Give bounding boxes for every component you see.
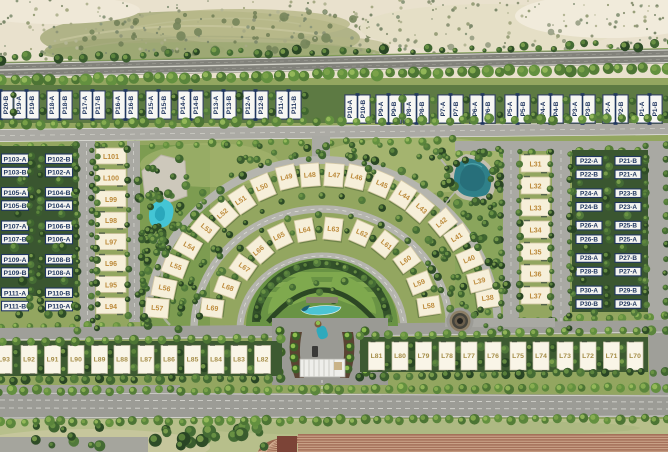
svg-text:P109-B: P109-B (3, 270, 26, 277)
svg-text:L63: L63 (327, 226, 340, 234)
svg-text:L77: L77 (463, 353, 475, 360)
svg-text:P18-A: P18-A (49, 95, 56, 114)
svg-text:L95: L95 (105, 282, 117, 289)
svg-text:P18-B: P18-B (62, 95, 69, 114)
svg-text:L33: L33 (529, 206, 541, 213)
svg-text:P28-B: P28-B (580, 269, 598, 276)
svg-text:L101: L101 (103, 154, 119, 161)
svg-text:L84: L84 (210, 357, 222, 364)
svg-text:L81: L81 (371, 353, 383, 360)
svg-text:L73: L73 (559, 353, 571, 360)
svg-text:L37: L37 (529, 294, 541, 301)
svg-text:P11-B: P11-B (291, 96, 298, 114)
svg-text:P1-A: P1-A (639, 101, 646, 116)
svg-text:L82: L82 (257, 357, 269, 364)
svg-text:P16-A: P16-A (115, 95, 122, 114)
svg-text:P8-A: P8-A (406, 101, 413, 116)
svg-text:P26-B: P26-B (580, 236, 598, 243)
svg-text:L97: L97 (105, 240, 117, 247)
svg-text:P24-A: P24-A (580, 190, 598, 197)
svg-text:P10-A: P10-A (347, 99, 354, 118)
svg-text:P3-A: P3-A (572, 101, 579, 116)
svg-text:L88: L88 (116, 357, 128, 364)
svg-text:P27-B: P27-B (619, 255, 637, 262)
svg-text:P104-A: P104-A (47, 203, 70, 210)
svg-text:P103-A: P103-A (3, 156, 26, 163)
svg-text:P108-B: P108-B (47, 257, 70, 264)
svg-text:P19-B: P19-B (29, 95, 36, 114)
svg-text:P13-B: P13-B (226, 95, 233, 114)
svg-text:P13-A: P13-A (213, 95, 220, 114)
svg-text:P27-A: P27-A (619, 269, 637, 276)
svg-text:P25-A: P25-A (619, 236, 637, 243)
svg-text:L76: L76 (487, 353, 499, 360)
svg-text:P105-A: P105-A (3, 190, 26, 197)
svg-text:L100: L100 (103, 175, 119, 182)
svg-text:P23-A: P23-A (619, 204, 637, 211)
svg-text:L36: L36 (529, 272, 541, 279)
svg-text:P110-A: P110-A (48, 304, 71, 311)
svg-text:P7-A: P7-A (440, 101, 447, 116)
svg-text:L31: L31 (529, 162, 541, 169)
svg-text:L80: L80 (394, 353, 406, 360)
svg-text:P10-B: P10-B (360, 99, 367, 118)
svg-text:L96: L96 (105, 261, 117, 268)
svg-text:L71: L71 (606, 353, 618, 360)
svg-text:P15-B: P15-B (161, 95, 168, 114)
svg-text:P111-B: P111-B (4, 304, 26, 311)
svg-text:P22-B: P22-B (580, 172, 598, 179)
svg-text:P9-A: P9-A (378, 101, 385, 116)
svg-text:P30-A: P30-A (580, 288, 598, 295)
svg-text:P11-A: P11-A (278, 96, 285, 114)
svg-text:P9-B: P9-B (391, 101, 398, 116)
svg-text:P111-A: P111-A (4, 290, 26, 297)
svg-text:P14-A: P14-A (180, 95, 187, 114)
svg-text:P14-B: P14-B (193, 95, 200, 114)
svg-text:P107-A: P107-A (3, 223, 26, 230)
svg-text:P21-A: P21-A (619, 172, 637, 179)
svg-text:P5-A: P5-A (507, 101, 514, 116)
svg-text:P102-A: P102-A (47, 170, 70, 177)
svg-text:P105-B: P105-B (3, 203, 26, 210)
svg-text:P102-B: P102-B (47, 156, 70, 163)
svg-text:P16-B: P16-B (128, 95, 135, 114)
svg-text:P25-B: P25-B (619, 223, 637, 230)
svg-text:P29-A: P29-A (619, 301, 637, 308)
svg-text:L94: L94 (105, 304, 117, 311)
svg-text:L48: L48 (304, 172, 317, 180)
svg-text:P26-A: P26-A (580, 223, 598, 230)
svg-text:P6-A: P6-A (472, 101, 479, 116)
svg-text:L87: L87 (140, 357, 152, 364)
svg-text:P106-A: P106-A (47, 237, 70, 244)
svg-text:P106-B: P106-B (47, 223, 70, 230)
svg-text:L32: L32 (529, 184, 541, 191)
svg-text:L72: L72 (582, 353, 594, 360)
svg-text:L90: L90 (70, 357, 82, 364)
svg-text:L57: L57 (151, 305, 164, 313)
svg-text:P28-A: P28-A (580, 255, 598, 262)
svg-text:P20-B: P20-B (3, 95, 10, 114)
svg-text:P104-B: P104-B (47, 190, 70, 197)
svg-text:P23-B: P23-B (619, 190, 637, 197)
svg-text:P110-B: P110-B (48, 290, 71, 297)
svg-text:P15-A: P15-A (148, 95, 155, 114)
svg-text:P12-B: P12-B (258, 95, 265, 114)
svg-text:P4-B: P4-B (553, 101, 560, 116)
svg-text:L34: L34 (529, 228, 541, 235)
svg-text:P107-B: P107-B (3, 237, 26, 244)
svg-text:L85: L85 (187, 357, 199, 364)
svg-text:L86: L86 (163, 357, 175, 364)
svg-text:P17-B: P17-B (95, 95, 102, 114)
svg-text:P24-B: P24-B (580, 204, 598, 211)
svg-text:L70: L70 (629, 353, 641, 360)
svg-text:L83: L83 (233, 357, 245, 364)
svg-text:P7-B: P7-B (453, 101, 460, 116)
svg-text:L91: L91 (47, 357, 59, 364)
svg-text:P8-B: P8-B (419, 101, 426, 116)
svg-text:P21-B: P21-B (619, 158, 637, 165)
svg-text:P1-B: P1-B (652, 101, 659, 116)
svg-text:L89: L89 (94, 357, 106, 364)
svg-text:P2-B: P2-B (618, 101, 625, 116)
svg-text:L78: L78 (441, 353, 453, 360)
svg-text:P108-A: P108-A (47, 270, 70, 277)
svg-text:P109-A: P109-A (3, 257, 26, 264)
svg-text:L75: L75 (512, 353, 524, 360)
svg-text:L79: L79 (418, 353, 430, 360)
svg-text:P29-B: P29-B (619, 288, 637, 295)
svg-text:L92: L92 (23, 357, 35, 364)
svg-text:P103-B: P103-B (3, 170, 26, 177)
svg-text:L93: L93 (0, 357, 10, 364)
svg-text:L99: L99 (105, 197, 117, 204)
svg-text:P12-A: P12-A (245, 95, 252, 114)
svg-text:P5-B: P5-B (520, 101, 527, 116)
svg-text:L35: L35 (529, 250, 541, 257)
svg-text:L47: L47 (328, 172, 341, 180)
svg-text:P30-B: P30-B (580, 301, 598, 308)
svg-text:P17-A: P17-A (82, 95, 89, 114)
svg-text:L74: L74 (535, 353, 547, 360)
svg-text:P22-A: P22-A (580, 158, 598, 165)
svg-text:L98: L98 (105, 218, 117, 225)
